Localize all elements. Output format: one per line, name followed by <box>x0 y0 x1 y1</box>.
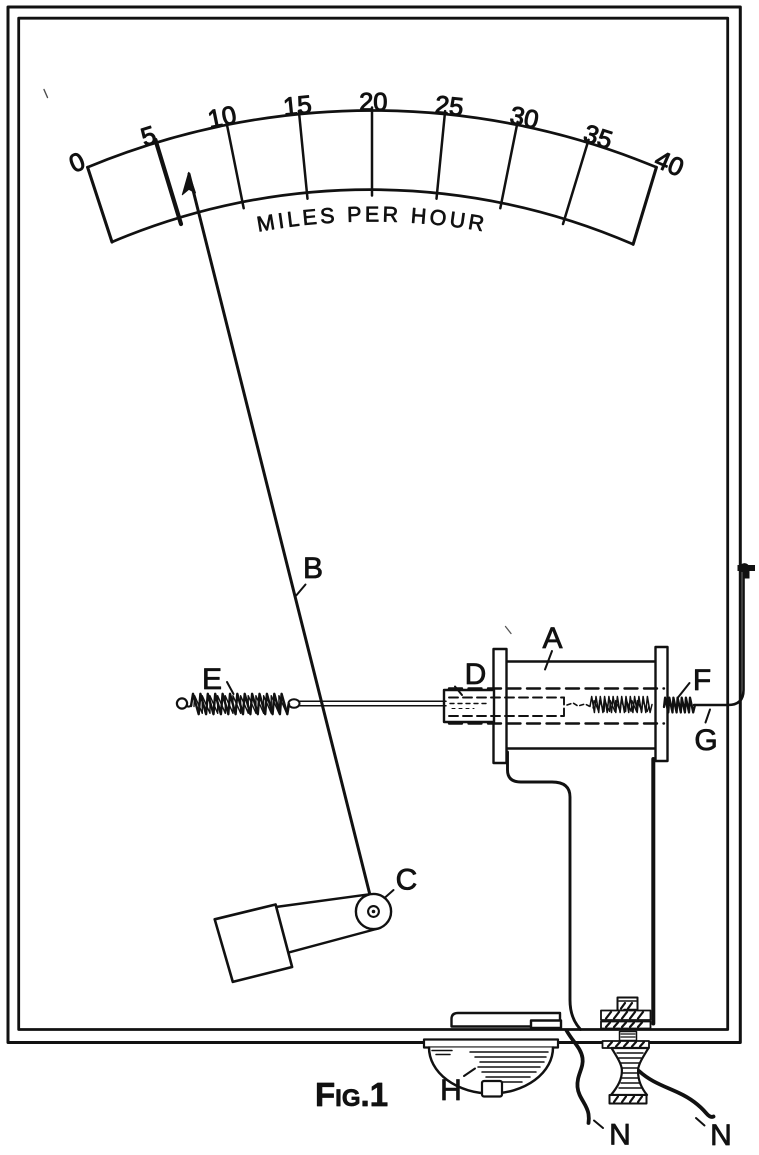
svg-text:N: N <box>609 1119 631 1151</box>
svg-text:A: A <box>542 622 562 655</box>
svg-text:N: N <box>710 1119 732 1150</box>
svg-text:G: G <box>694 724 717 757</box>
svg-text:E: E <box>202 663 222 696</box>
svg-text:D: D <box>465 658 487 691</box>
svg-text:25: 25 <box>434 91 465 122</box>
svg-text:F: F <box>693 664 711 697</box>
svg-text:20: 20 <box>359 88 387 116</box>
svg-text:H: H <box>440 1074 462 1107</box>
svg-text:C: C <box>396 864 418 897</box>
svg-text:30: 30 <box>508 102 542 135</box>
svg-text:B: B <box>303 552 323 585</box>
svg-text:15: 15 <box>282 91 313 122</box>
svg-text:10: 10 <box>206 101 239 134</box>
